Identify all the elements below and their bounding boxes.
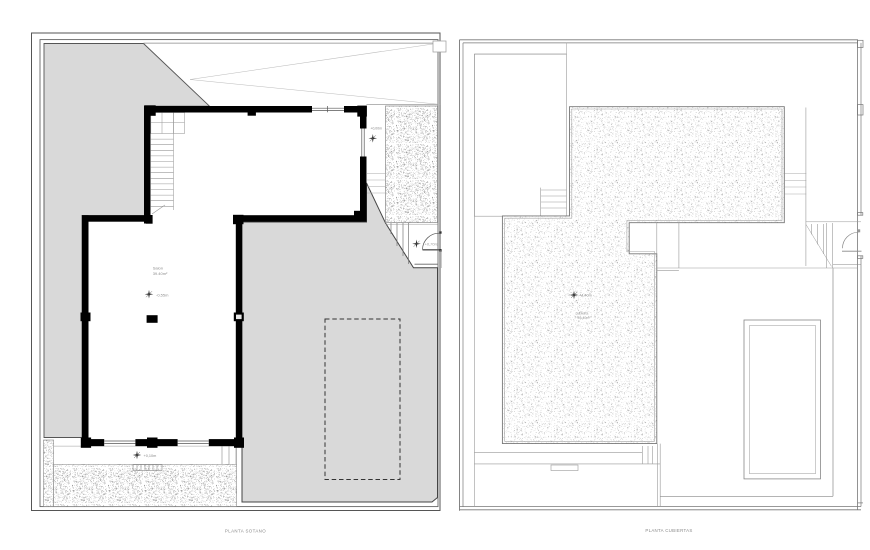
svg-text:PLANTA SOTANO: PLANTA SOTANO	[225, 529, 266, 534]
svg-text:+0,00m: +0,00m	[371, 127, 383, 131]
svg-text:+0,10m: +0,10m	[144, 454, 157, 458]
svg-text:39.40m²: 39.40m²	[577, 316, 591, 320]
svg-text:+0,70m: +0,70m	[425, 241, 439, 246]
svg-text:PLANTA CUBIERTAS: PLANTA CUBIERTAS	[645, 528, 692, 533]
svg-text:cubierta: cubierta	[576, 312, 589, 316]
svg-text:-0,55m: -0,55m	[156, 292, 169, 297]
svg-text:+4,40m: +4,40m	[579, 294, 592, 298]
svg-text:39.40m²: 39.40m²	[153, 271, 168, 276]
svg-text:Salon: Salon	[153, 266, 163, 271]
